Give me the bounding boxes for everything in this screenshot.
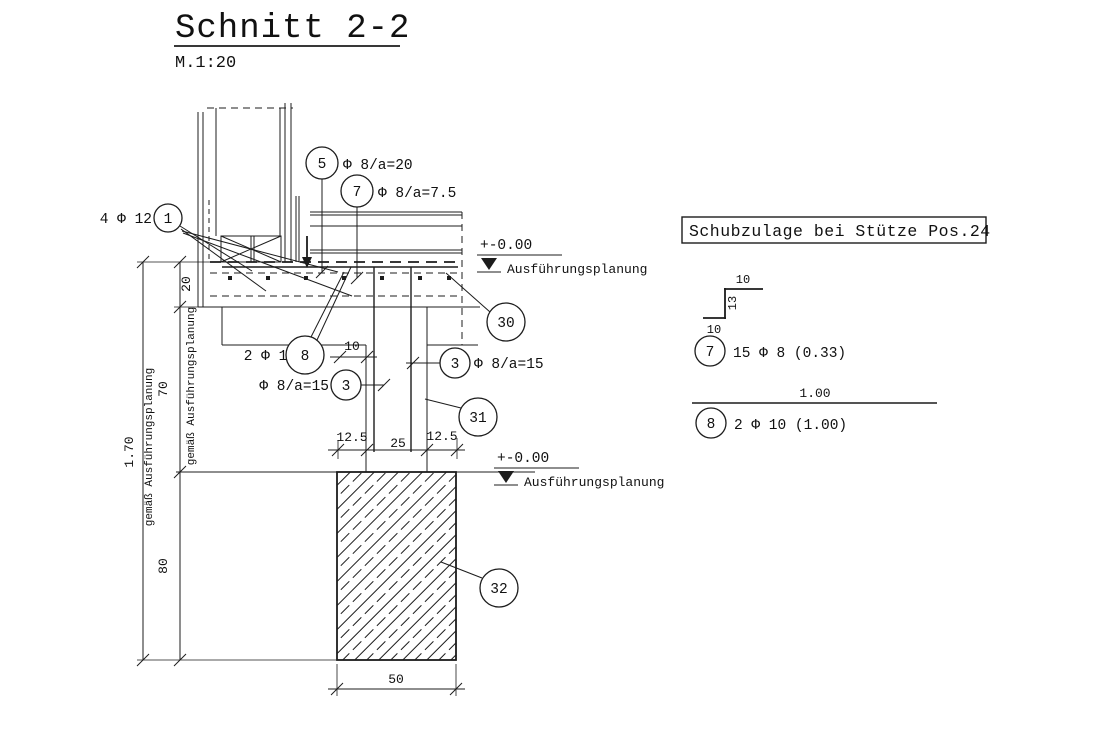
level-marker-foundation: +-0.00 Ausführungsplanung	[494, 451, 664, 490]
drawing-scale: M.1:20	[175, 54, 236, 73]
dim-column-width: 12.5 25 12.5	[328, 429, 465, 459]
detail-callout-7-text: 15 Φ 8 (0.33)	[733, 346, 846, 362]
callout-pos1-label: 1	[164, 212, 173, 228]
dim-anchorage-value: 10	[344, 339, 360, 354]
callout-pos7: 7 Φ 8/a=7.5	[341, 175, 456, 207]
callout-pos31-label: 31	[469, 411, 486, 427]
drawing-title: Schnitt 2-2	[175, 10, 410, 48]
detail-dim-bottom: 10	[707, 323, 721, 337]
annotation-pos1: 4 Φ 12	[100, 212, 152, 228]
detail-dim-length: 1.00	[799, 386, 830, 401]
annotation-pos5: Φ 8/a=20	[343, 158, 413, 174]
detail-callout-7-label: 7	[706, 345, 715, 361]
callout-pos5: 5 Φ 8/a=20	[306, 147, 413, 179]
level-slab-note: Ausführungsplanung	[507, 262, 647, 277]
callout-pos3-left-label: 3	[342, 379, 351, 395]
stirrup-bar-sketch: 10 13 10	[703, 273, 763, 337]
foundation-block	[337, 472, 456, 660]
title-block: Schnitt 2-2 M.1:20	[174, 10, 410, 73]
dim-offset-left: 12.5	[336, 430, 367, 445]
callout-pos8-label: 8	[301, 349, 310, 365]
callout-pos5-label: 5	[318, 157, 327, 173]
callout-pos1: 4 Φ 12 1	[100, 204, 182, 232]
dimension-chains: 20 70 80 1.70 gemäß Ausführungsplanung g…	[122, 256, 337, 666]
dim-anchorage: 10	[330, 339, 377, 363]
callout-pos32: 32	[480, 569, 518, 607]
level-triangle-icon	[498, 471, 514, 483]
dim-note-inner: gemäß Ausführungsplanung	[186, 307, 198, 465]
level-foundation-note: Ausführungsplanung	[524, 475, 664, 490]
callout-pos8: 2 Φ 10 8	[244, 336, 324, 374]
dim-column-width-value: 25	[390, 436, 406, 451]
rebar-dots	[228, 276, 451, 280]
level-foundation-value: +-0.00	[497, 451, 549, 467]
detail-title: Schubzulage bei Stütze Pos.24	[689, 222, 991, 241]
detail-callout-7: 7 15 Φ 8 (0.33)	[695, 336, 846, 366]
detail-callout-8: 8 2 Φ 10 (1.00)	[696, 408, 847, 438]
callout-pos30-label: 30	[497, 316, 514, 332]
dim-note-outer: gemäß Ausführungsplanung	[144, 368, 156, 526]
dim-foundation-height: 80	[156, 558, 171, 574]
level-marker-slab: +-0.00 Ausführungsplanung	[477, 238, 647, 277]
callout-pos3-right: 3 Φ 8/a=15	[440, 348, 544, 378]
detail-callout-8-label: 8	[707, 417, 716, 433]
callout-pos32-label: 32	[490, 582, 507, 598]
dim-slab-thickness: 20	[179, 276, 194, 292]
dim-foundation-width: 50	[328, 664, 465, 696]
blueprint-page: Schnitt 2-2 M.1:20	[0, 0, 1100, 729]
shear-detail: Schubzulage bei Stütze Pos.24 10 13 10 7…	[682, 217, 991, 438]
annotation-pos3-right: Φ 8/a=15	[474, 357, 544, 373]
dim-offset-right: 12.5	[426, 429, 457, 444]
slab	[198, 212, 480, 345]
detail-callout-8-text: 2 Φ 10 (1.00)	[734, 418, 847, 434]
callout-pos3-right-label: 3	[451, 357, 460, 373]
upper-wall	[198, 103, 312, 307]
section-drawing: Schnitt 2-2 M.1:20	[0, 0, 1100, 729]
annotation-pos3-left: Φ 8/a=15	[259, 379, 329, 395]
callout-pos3-left: Φ 8/a=15 3	[259, 370, 361, 400]
level-triangle-icon	[481, 258, 497, 270]
dim-foundation-width-value: 50	[388, 672, 404, 687]
dim-beam-height: 70	[156, 381, 171, 397]
annotation-pos7: Φ 8/a=7.5	[378, 186, 456, 202]
callout-pos30: 30	[487, 303, 525, 341]
straight-bar-sketch: 1.00	[692, 386, 937, 403]
foundation	[176, 472, 535, 660]
level-slab-value: +-0.00	[480, 238, 532, 254]
callout-pos7-label: 7	[353, 185, 362, 201]
detail-dim-side: 13	[726, 296, 740, 310]
dim-total-height: 1.70	[122, 436, 137, 467]
detail-dim-top: 10	[736, 273, 750, 287]
callout-pos31: 31	[459, 398, 497, 436]
